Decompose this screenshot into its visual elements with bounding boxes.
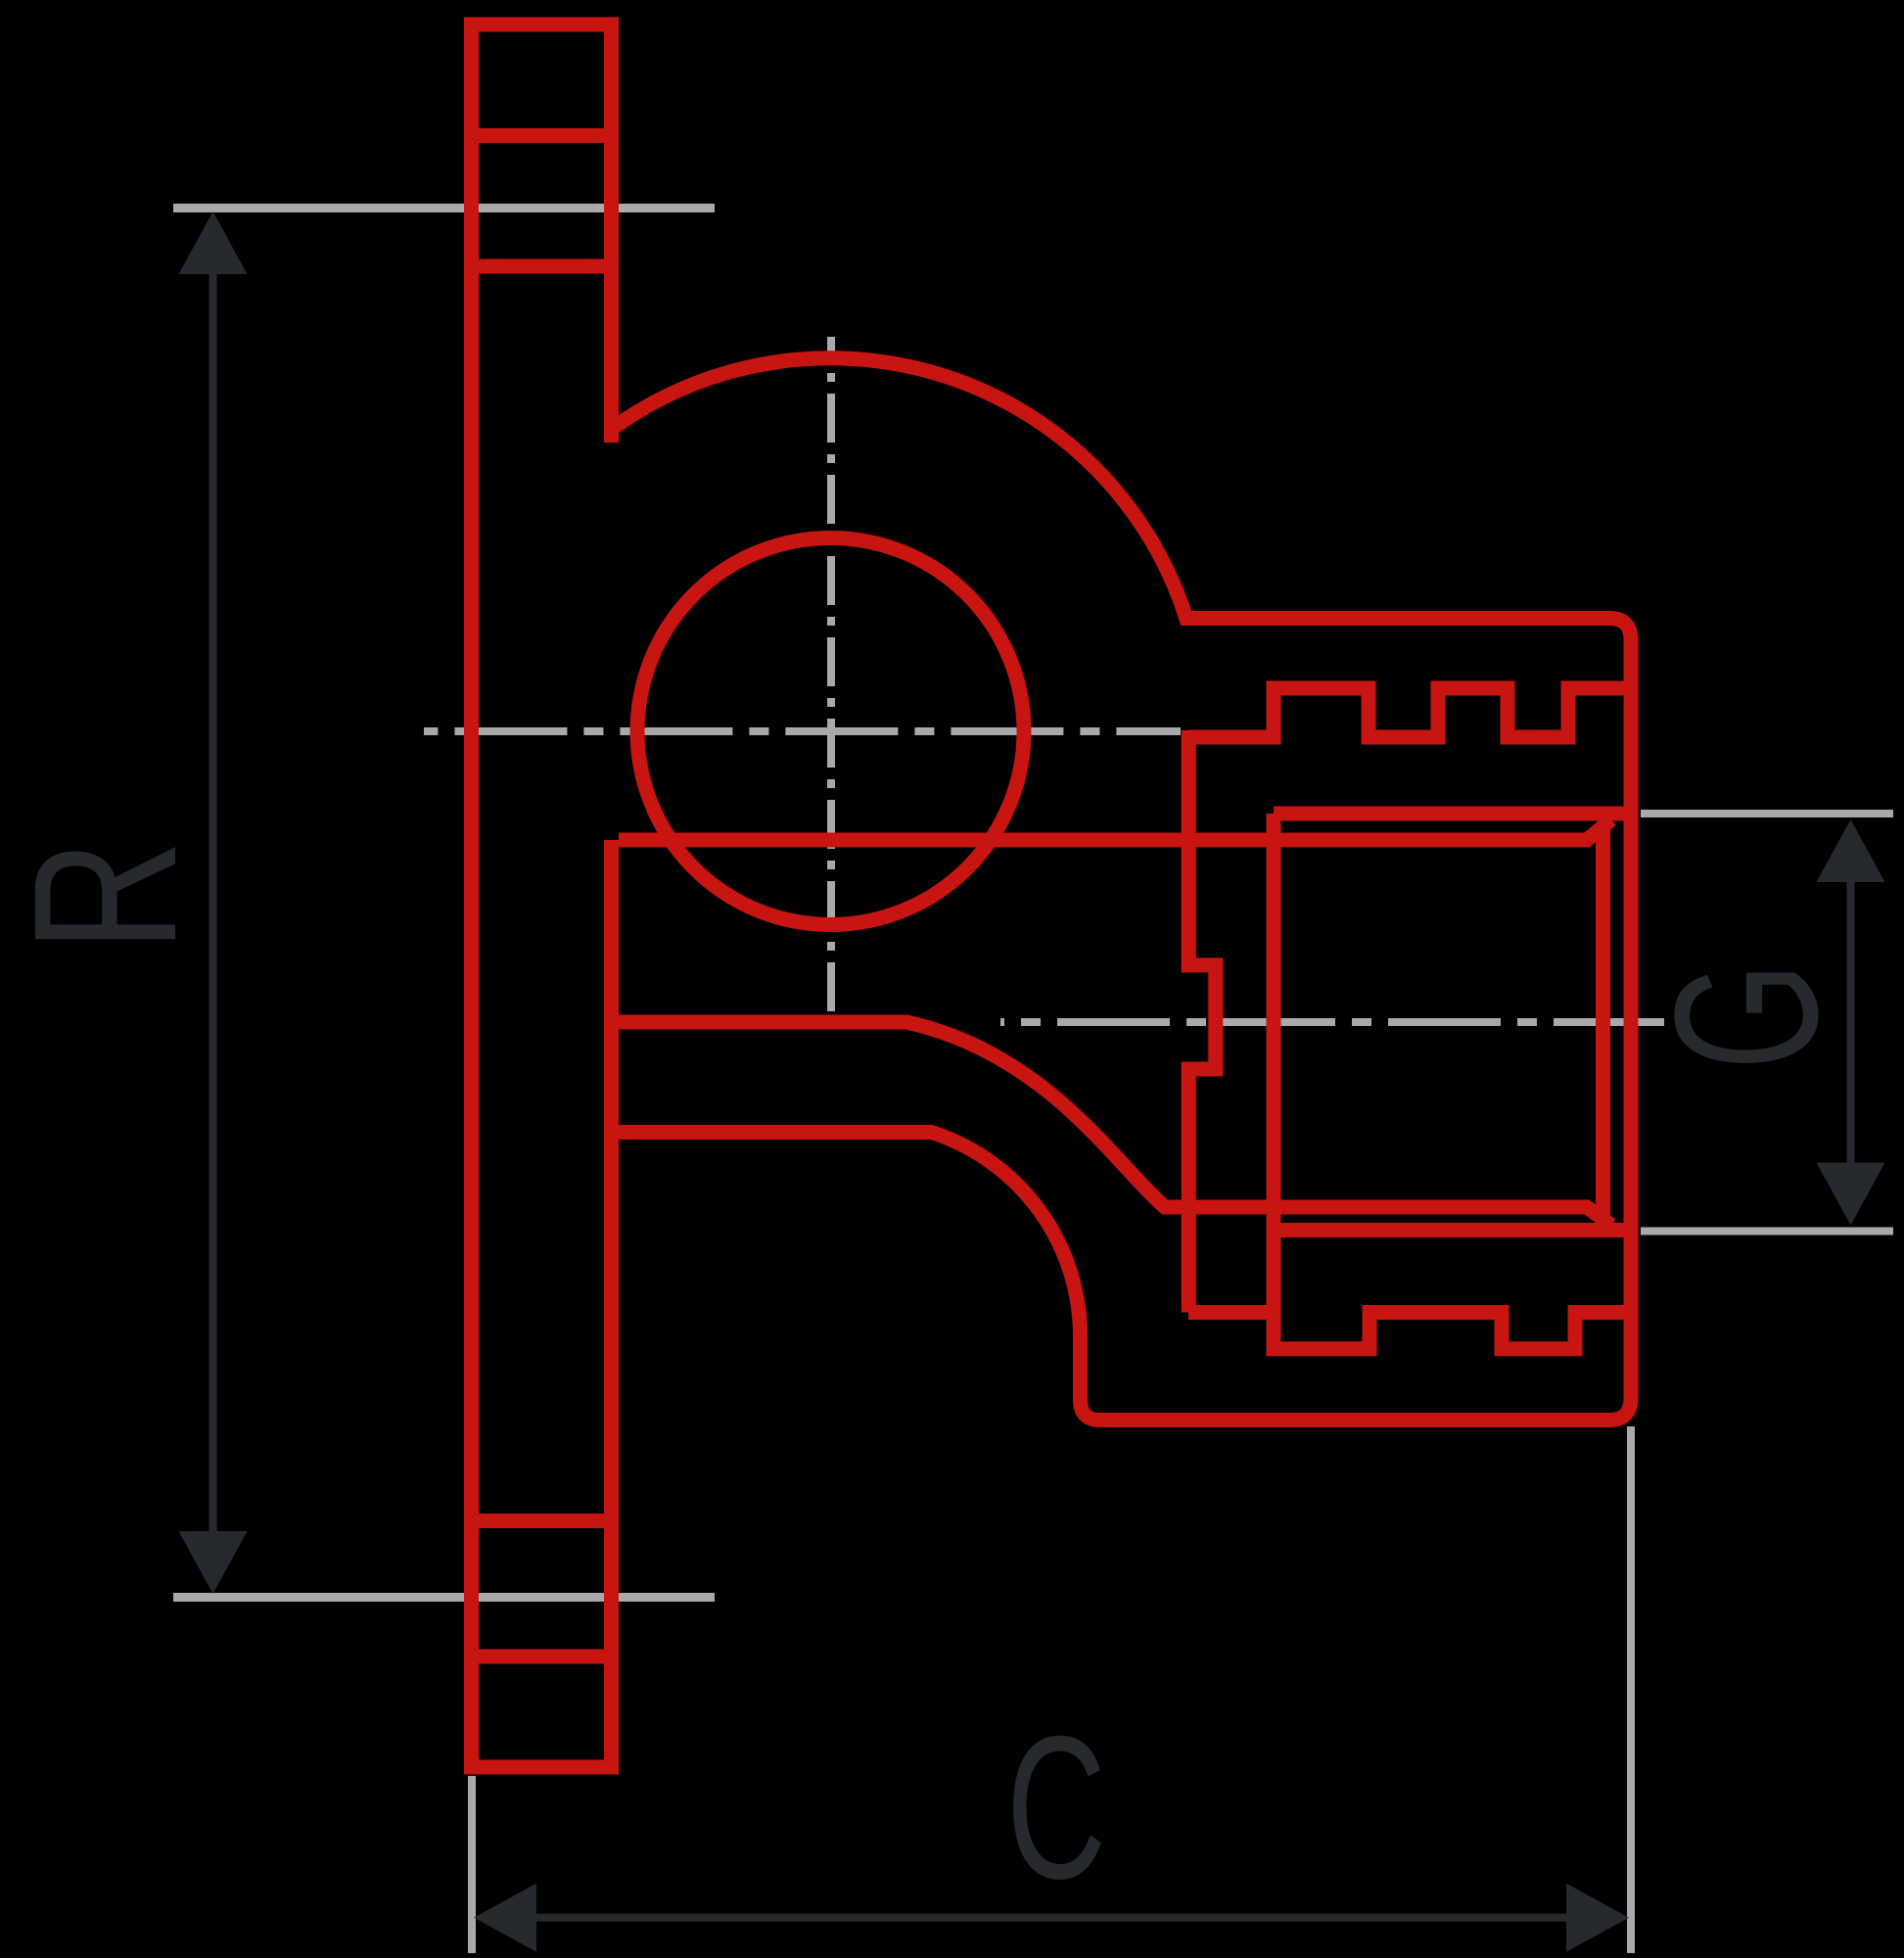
svg-text:C: C (1006, 1694, 1106, 1922)
svg-text:R: R (0, 840, 219, 952)
svg-text:G: G (1632, 962, 1860, 1070)
